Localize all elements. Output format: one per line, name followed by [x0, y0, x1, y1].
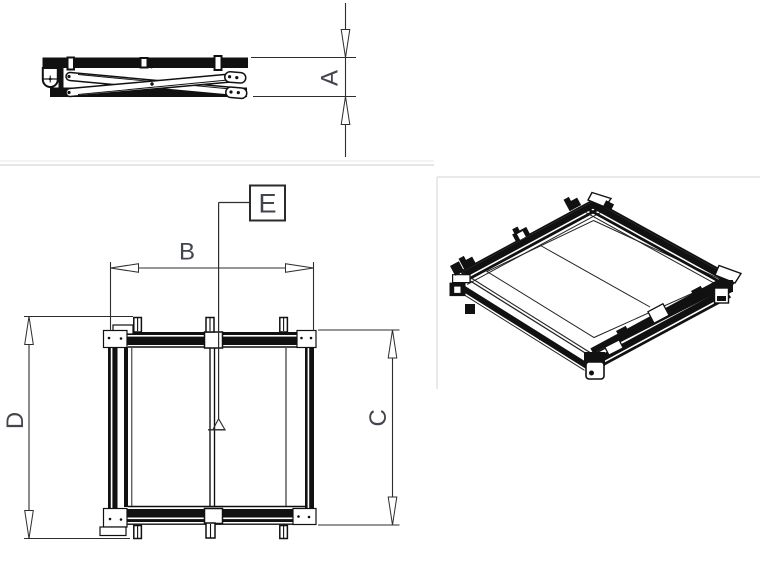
svg-text:D: D — [2, 412, 29, 429]
svg-text:E: E — [258, 189, 276, 219]
svg-text:C: C — [365, 409, 392, 426]
svg-text:A: A — [317, 70, 344, 86]
svg-text:B: B — [179, 239, 195, 266]
